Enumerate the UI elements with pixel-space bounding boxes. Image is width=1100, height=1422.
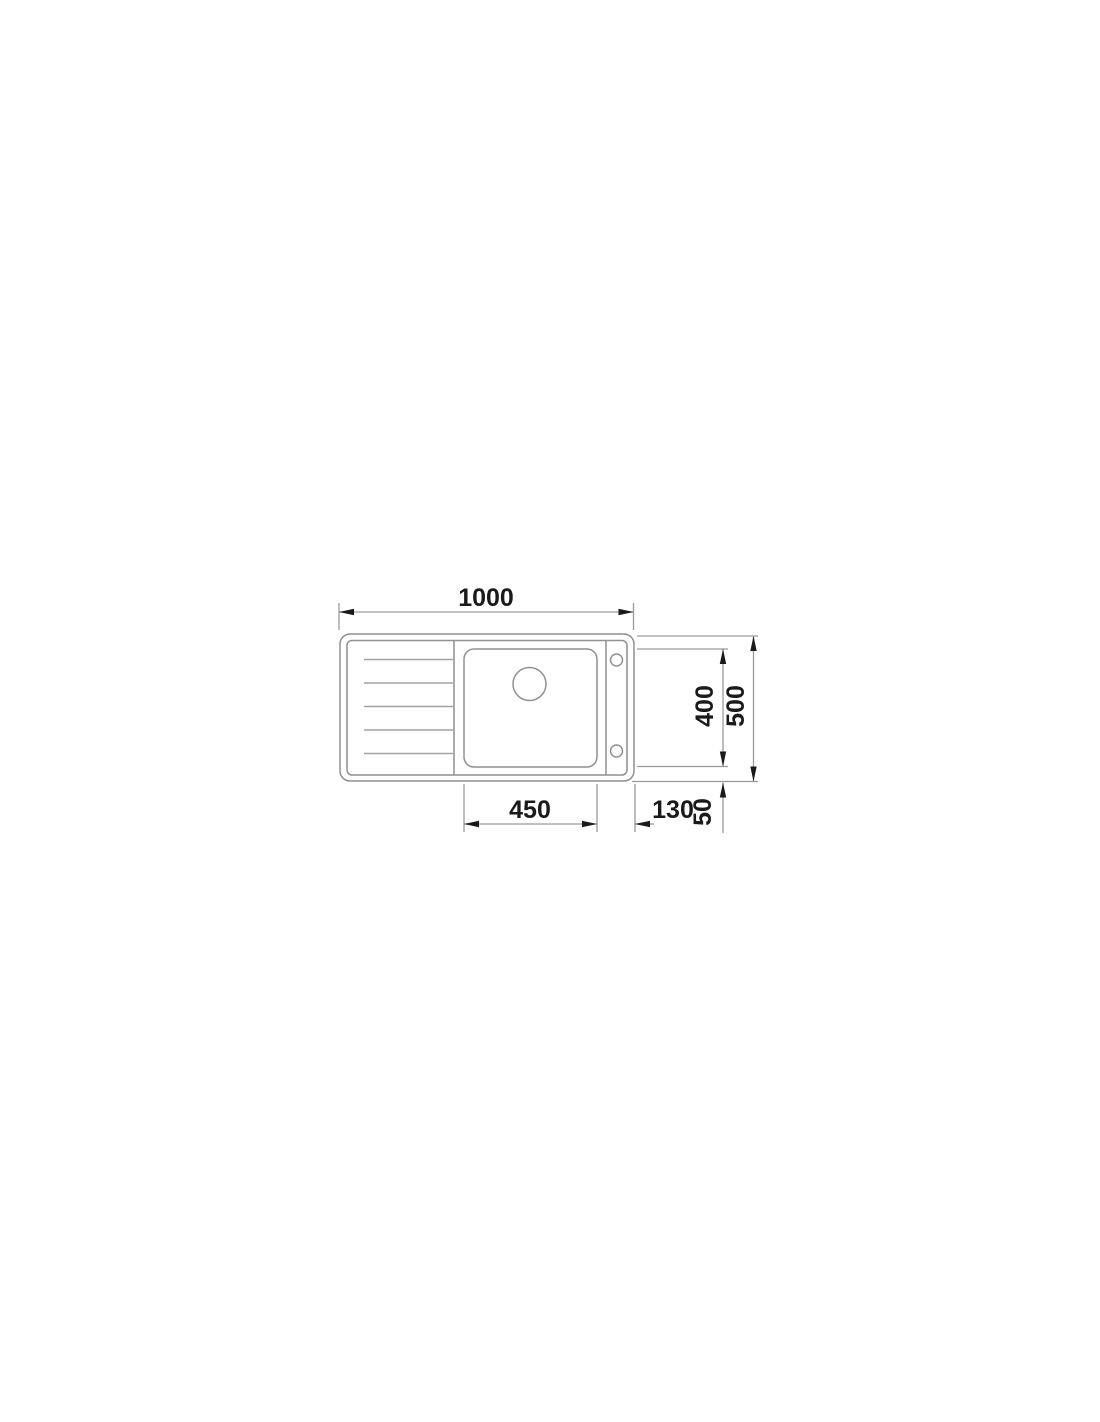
drain-hole-icon (513, 668, 546, 701)
sink-rim-inner (347, 641, 627, 776)
drainboard-grooves (364, 660, 453, 754)
dim-label-overall-depth: 500 (722, 685, 750, 727)
sink-dimension-diagram: 1000 450 130 50 (0, 0, 1100, 1422)
dim-label-bowl-right-offset: 130 (652, 796, 694, 824)
arrowhead-left-icon (635, 821, 650, 827)
dim-overall-width: 1000 (339, 584, 634, 630)
arrowhead-down-icon (750, 767, 756, 782)
arrowhead-right-icon (582, 821, 597, 827)
sink-drawing (340, 634, 634, 781)
arrowhead-left-icon (339, 609, 354, 615)
arrowhead-down-icon (720, 752, 726, 767)
bowl (464, 649, 597, 767)
tap-hole-top-icon (611, 654, 623, 666)
arrowhead-right-icon (619, 609, 634, 615)
tap-hole-bottom-icon (611, 745, 623, 757)
sink-rim-outer (340, 634, 634, 781)
dim-bowl-right-offset: 130 (635, 784, 694, 832)
arrowhead-up-icon (720, 649, 726, 664)
dim-bowl-width: 450 (464, 784, 597, 832)
arrowhead-up-icon (750, 636, 756, 651)
page: 1000 450 130 50 (0, 0, 1100, 1422)
dim-label-rim-offset: 50 (689, 798, 717, 826)
dim-label-bowl-depth: 400 (691, 685, 719, 727)
dim-rim-offset: 50 (689, 783, 726, 834)
arrowhead-left-icon (464, 821, 479, 827)
arrowhead-up-icon (720, 783, 726, 798)
dim-label-overall-width: 1000 (458, 584, 514, 612)
dim-bowl-depth: 400 (637, 649, 728, 767)
dim-label-bowl-width: 450 (509, 796, 551, 824)
